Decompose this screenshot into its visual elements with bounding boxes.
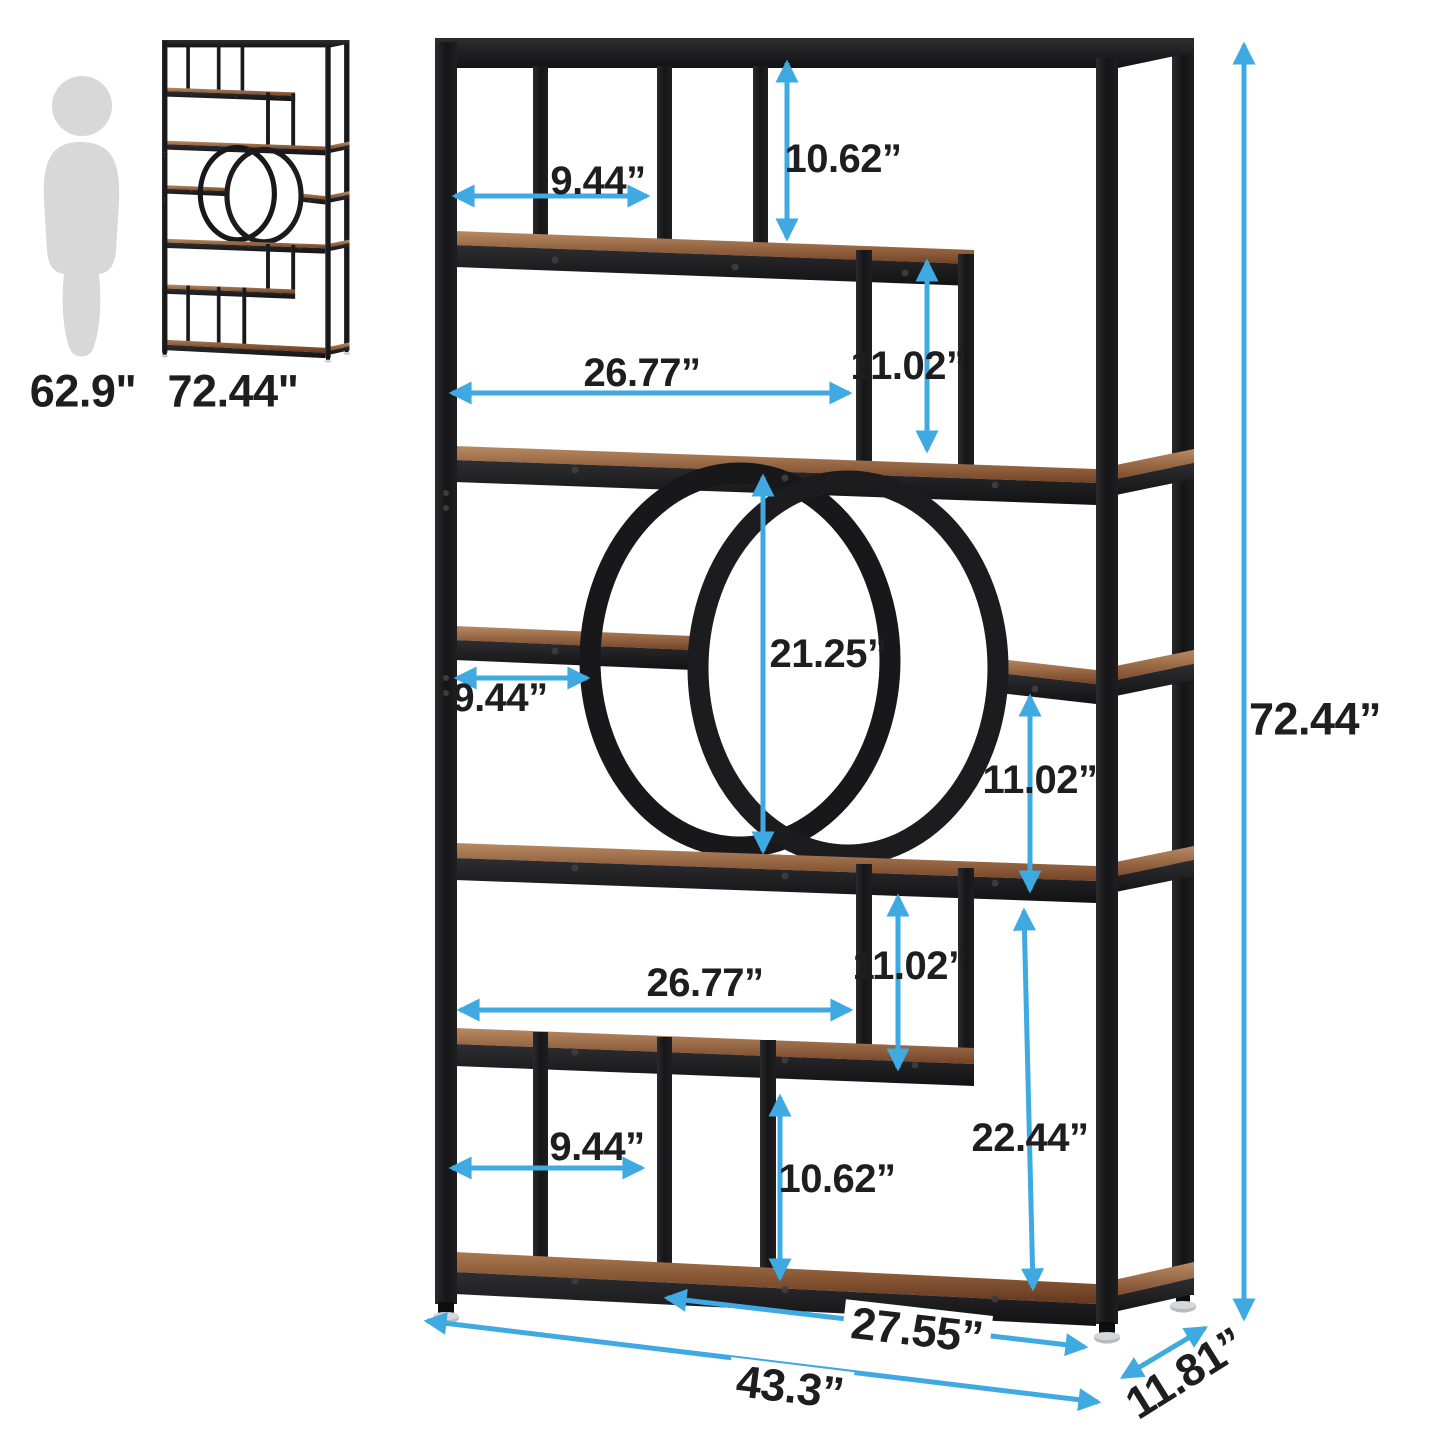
dim-label-overall-height: 72.44” bbox=[1249, 697, 1381, 742]
diagram-canvas bbox=[0, 0, 1445, 1445]
dim-label-bottom-compartment-height: 10.62” bbox=[778, 1159, 895, 1199]
dim-label-lower-step-height: 11.02” bbox=[853, 946, 968, 986]
product-dimension-diagram: 62.9" 72.44" 9.44” 10.62” 26.77” 11.02” … bbox=[0, 0, 1445, 1445]
dim-label-top-shelf-width: 9.44” bbox=[550, 161, 645, 201]
dim-label-lower-long-shelf-width: 26.77” bbox=[646, 963, 763, 1003]
dim-label-upper-long-shelf-width: 26.77” bbox=[583, 353, 700, 393]
dim-label-top-compartment-height: 10.62” bbox=[784, 139, 901, 179]
dim-arrow-lower-right-section-height bbox=[1024, 911, 1033, 1288]
dim-label-middle-shelf-width: 9.44” bbox=[452, 678, 547, 718]
person-height-label: 62.9" bbox=[30, 369, 136, 414]
dim-label-upper-step-height: 11.02” bbox=[851, 346, 966, 386]
dim-label-circle-diameter: 21.25” bbox=[769, 634, 886, 674]
person-silhouette bbox=[44, 76, 120, 357]
thumbnail-bookshelf bbox=[162, 40, 350, 362]
dim-label-lower-right-section-height: 22.44” bbox=[971, 1118, 1088, 1158]
dim-label-middle-right-height: 11.02” bbox=[983, 760, 1098, 800]
product-height-label: 72.44" bbox=[168, 369, 299, 414]
dim-label-bottom-shelf-width: 9.44” bbox=[549, 1127, 644, 1167]
